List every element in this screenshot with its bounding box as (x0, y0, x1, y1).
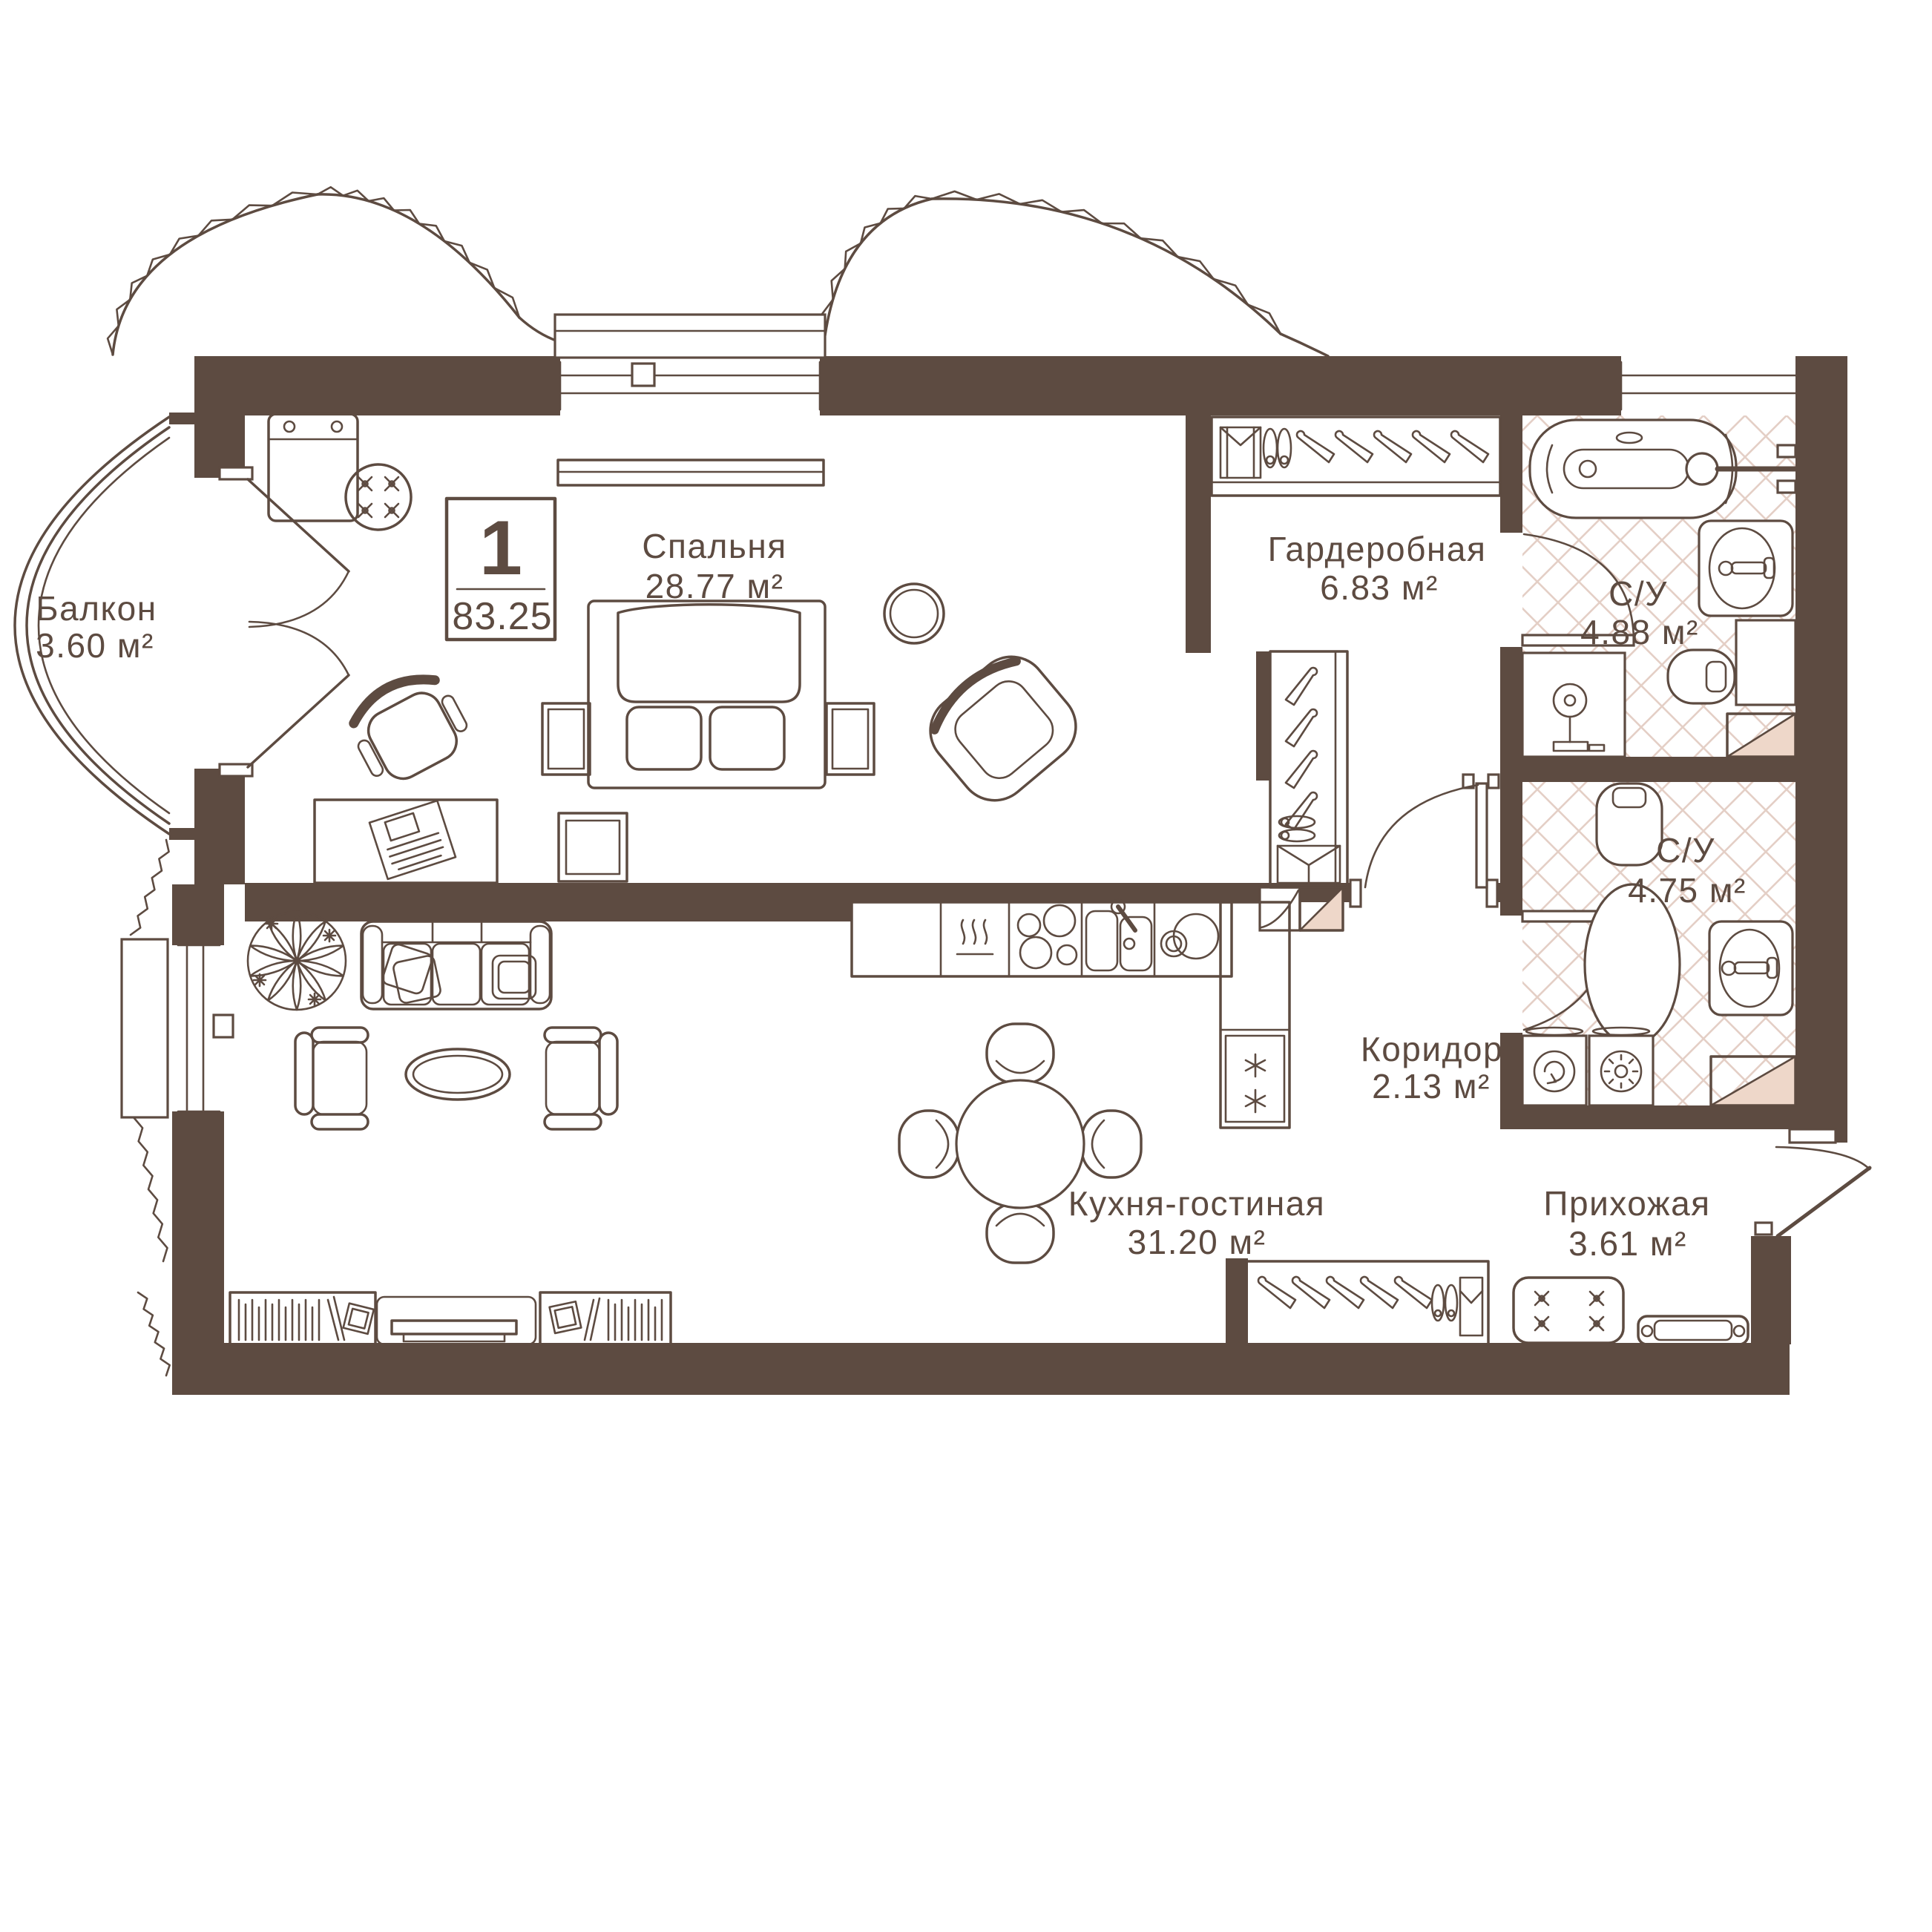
dining-chair-icon (899, 1111, 959, 1177)
bookshelf-icon (230, 1292, 375, 1344)
hanger-icon (1327, 1277, 1364, 1308)
kitchen-sink-icon (1086, 900, 1151, 970)
dining-chair-icon (987, 1203, 1054, 1263)
balcony-area: 3.60 м² (36, 626, 154, 665)
tv-icon (377, 1297, 536, 1344)
room-label-balcony: Балкон 3.60 м² (36, 589, 157, 665)
nightstand-icon (827, 703, 874, 775)
hanger-icon (1395, 1277, 1432, 1308)
hanger-icon (1297, 431, 1334, 462)
shower-icon (1522, 653, 1625, 757)
hanger-icon (1413, 431, 1450, 462)
wardrobe-area: 6.83 м² (1320, 568, 1439, 607)
lounge-chair-icon (916, 643, 1090, 815)
dining-table-icon (899, 1024, 1141, 1263)
ceiling-light-icon (346, 464, 411, 530)
room-label-corridor: Коридор 2.13 м² (1361, 1030, 1503, 1105)
dryer-icon (1589, 1028, 1653, 1105)
corridor-name: Коридор (1361, 1030, 1503, 1068)
bathroom-2-area: 4.75 м² (1628, 871, 1747, 910)
room-label-hallway: Прихожая 3.61 м² (1543, 1184, 1710, 1263)
hallway-area: 3.61 м² (1568, 1224, 1687, 1263)
sofa-icon (361, 921, 551, 1009)
wardrobe-closet-icon (1212, 417, 1500, 496)
pot-icon (1161, 914, 1218, 959)
dining-chair-icon (987, 1024, 1054, 1083)
sink-icon (1709, 921, 1793, 1015)
washer-icon (1522, 1028, 1586, 1105)
bed-icon (588, 601, 825, 788)
bathroom-1-area: 4.88 м² (1580, 613, 1699, 651)
floor-plan: 1 83.25 (0, 0, 1932, 1932)
shoe-bench-icon (1638, 1316, 1748, 1344)
wardrobe-name: Гардеробная (1268, 530, 1487, 568)
balcony-name: Балкон (36, 589, 157, 628)
bedroom-area: 28.77 м² (645, 567, 784, 605)
bathroom-window (1621, 362, 1795, 410)
corridor-area: 2.13 м² (1372, 1067, 1491, 1105)
dining-chair-icon (1082, 1111, 1141, 1177)
console-icon (269, 414, 358, 521)
kitchen-living-area: 31.20 м² (1128, 1223, 1266, 1261)
kitchen-counter (852, 902, 1289, 1128)
bench-icon (1514, 1278, 1623, 1343)
hanger-icon (1286, 792, 1317, 829)
hood-icon (957, 920, 993, 954)
room-label-kitchen-living: Кухня-гостиная 31.20 м² (1068, 1184, 1325, 1261)
hanger-icon (1286, 709, 1317, 746)
hanger-icon (1361, 1277, 1398, 1308)
bedroom-window (555, 315, 825, 410)
unit-info-box: 1 83.25 (447, 499, 555, 640)
toilet-icon (1597, 783, 1662, 865)
room-label-wardrobe: Гардеробная 6.83 м² (1268, 530, 1487, 607)
cabinet-icon (559, 813, 627, 881)
office-chair-icon (340, 663, 476, 792)
side-table-icon (884, 584, 944, 643)
bathroom-1-name: С/У (1609, 574, 1668, 613)
cooktop-icon (1018, 905, 1077, 968)
armchair-icon (545, 1028, 617, 1129)
living-room-window (122, 939, 233, 1117)
entry-door (1755, 1129, 1870, 1236)
hanger-icon (1258, 1277, 1295, 1308)
fridge-icon (1226, 1036, 1284, 1122)
hanger-icon (1335, 431, 1373, 462)
hallway-name: Прихожая (1543, 1184, 1710, 1223)
unit-rooms-count: 1 (479, 505, 522, 591)
sink-icon (1699, 521, 1793, 616)
bedroom-name: Спальня (642, 527, 786, 565)
hanger-icon (1451, 431, 1488, 462)
floor-plan-page: 1 83.25 (0, 0, 1932, 1932)
radiator-shelf (558, 460, 824, 485)
bedroom-door (1350, 775, 1499, 907)
kitchen-living-name: Кухня-гостиная (1068, 1184, 1325, 1223)
balcony-french-doors (220, 467, 349, 776)
closet-column-icon (1270, 651, 1347, 887)
desk-icon (315, 800, 497, 883)
unit-total-area: 83.25 (452, 595, 552, 638)
hanger-icon (1292, 1277, 1330, 1308)
hanger-icon (1374, 431, 1411, 462)
nightstand-icon (542, 703, 590, 775)
bookshelf-icon (540, 1292, 671, 1344)
coffee-table-icon (406, 1049, 510, 1100)
room-label-bedroom: Спальня 28.77 м² (642, 527, 786, 605)
hanger-icon (1286, 668, 1317, 705)
hanger-icon (1286, 751, 1317, 788)
bathroom-2-name: С/У (1656, 831, 1715, 870)
armchair-icon (295, 1028, 368, 1129)
plant-icon (248, 912, 346, 1010)
hallway-closet-icon (1246, 1261, 1488, 1344)
